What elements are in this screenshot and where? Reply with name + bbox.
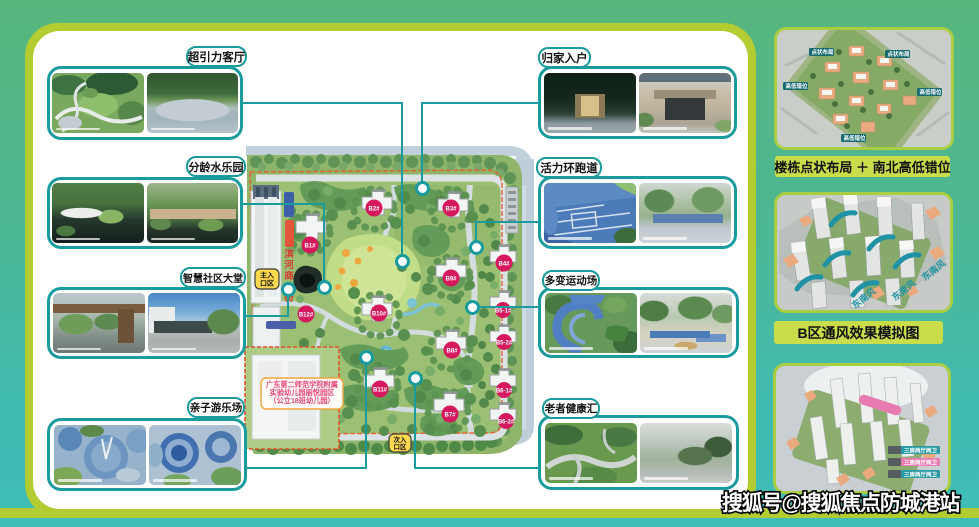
svg-text:B8#: B8#: [446, 349, 458, 355]
svg-text:主入: 主入: [260, 271, 274, 280]
svg-text:B1#: B1#: [304, 244, 316, 250]
svg-text:B4#: B4#: [498, 262, 510, 268]
svg-text:B10#: B10#: [372, 312, 387, 318]
svg-text:点状布局: 点状布局: [888, 50, 911, 58]
svg-text:滨: 滨: [284, 248, 294, 260]
svg-text:B3#: B3#: [445, 207, 457, 213]
svg-text:B9#: B9#: [445, 277, 457, 283]
svg-text:B7#: B7#: [444, 413, 456, 419]
svg-text:商: 商: [284, 270, 294, 282]
svg-text:B12#: B12#: [299, 313, 314, 319]
svg-text:B6-2#: B6-2#: [498, 420, 515, 426]
svg-text:B11#: B11#: [373, 388, 388, 394]
svg-text:高低错位: 高低错位: [844, 134, 867, 142]
svg-text:三房两厅两卫: 三房两厅两卫: [904, 447, 938, 455]
svg-text:（公立18班幼儿园）: （公立18班幼儿园）: [269, 396, 335, 405]
svg-text:高低错位: 高低错位: [786, 82, 809, 90]
svg-text:B5-1#: B5-1#: [495, 309, 512, 315]
svg-text:三房两厅两卫: 三房两厅两卫: [904, 459, 938, 467]
svg-text:点状布局: 点状布局: [812, 48, 835, 56]
svg-text:搜狐号@搜狐焦点防城港站: 搜狐号@搜狐焦点防城港站: [722, 491, 960, 515]
svg-text:次入: 次入: [394, 435, 408, 444]
svg-text:高低错位: 高低错位: [920, 88, 943, 96]
svg-text:三房两厅两卫: 三房两厅两卫: [904, 471, 938, 479]
svg-text:B6-1#: B6-1#: [496, 389, 513, 395]
svg-text:口区: 口区: [394, 443, 408, 451]
svg-text:河: 河: [284, 259, 294, 271]
svg-text:B5-2#: B5-2#: [496, 341, 513, 347]
svg-text:B2#: B2#: [368, 207, 380, 213]
svg-text:口区: 口区: [260, 280, 274, 288]
